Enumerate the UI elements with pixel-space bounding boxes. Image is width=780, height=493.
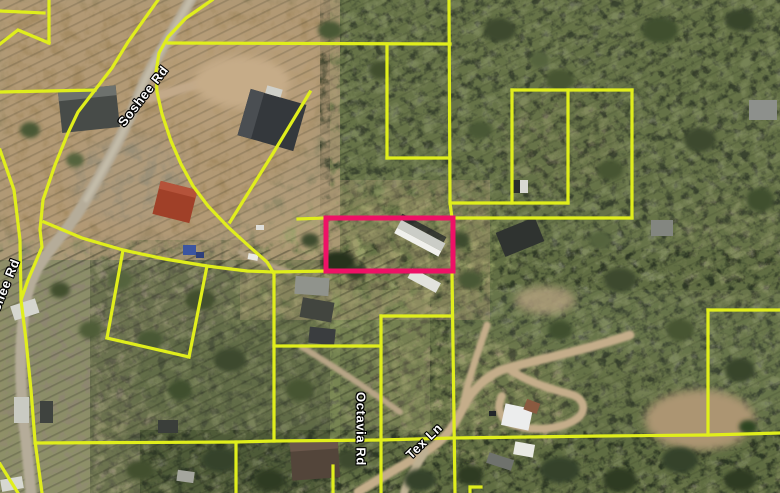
map-viewport[interactable]: Soshee Rd Soshee Rd Octavia Rd Tex Ln — [0, 0, 780, 493]
parcel-boundary — [298, 218, 326, 219]
parcel-boundary — [0, 90, 95, 92]
parcel-boundary — [0, 11, 44, 13]
parcel-boundary — [273, 271, 326, 272]
parcel-boundary — [168, 43, 450, 44]
aerial-imagery — [0, 0, 780, 493]
